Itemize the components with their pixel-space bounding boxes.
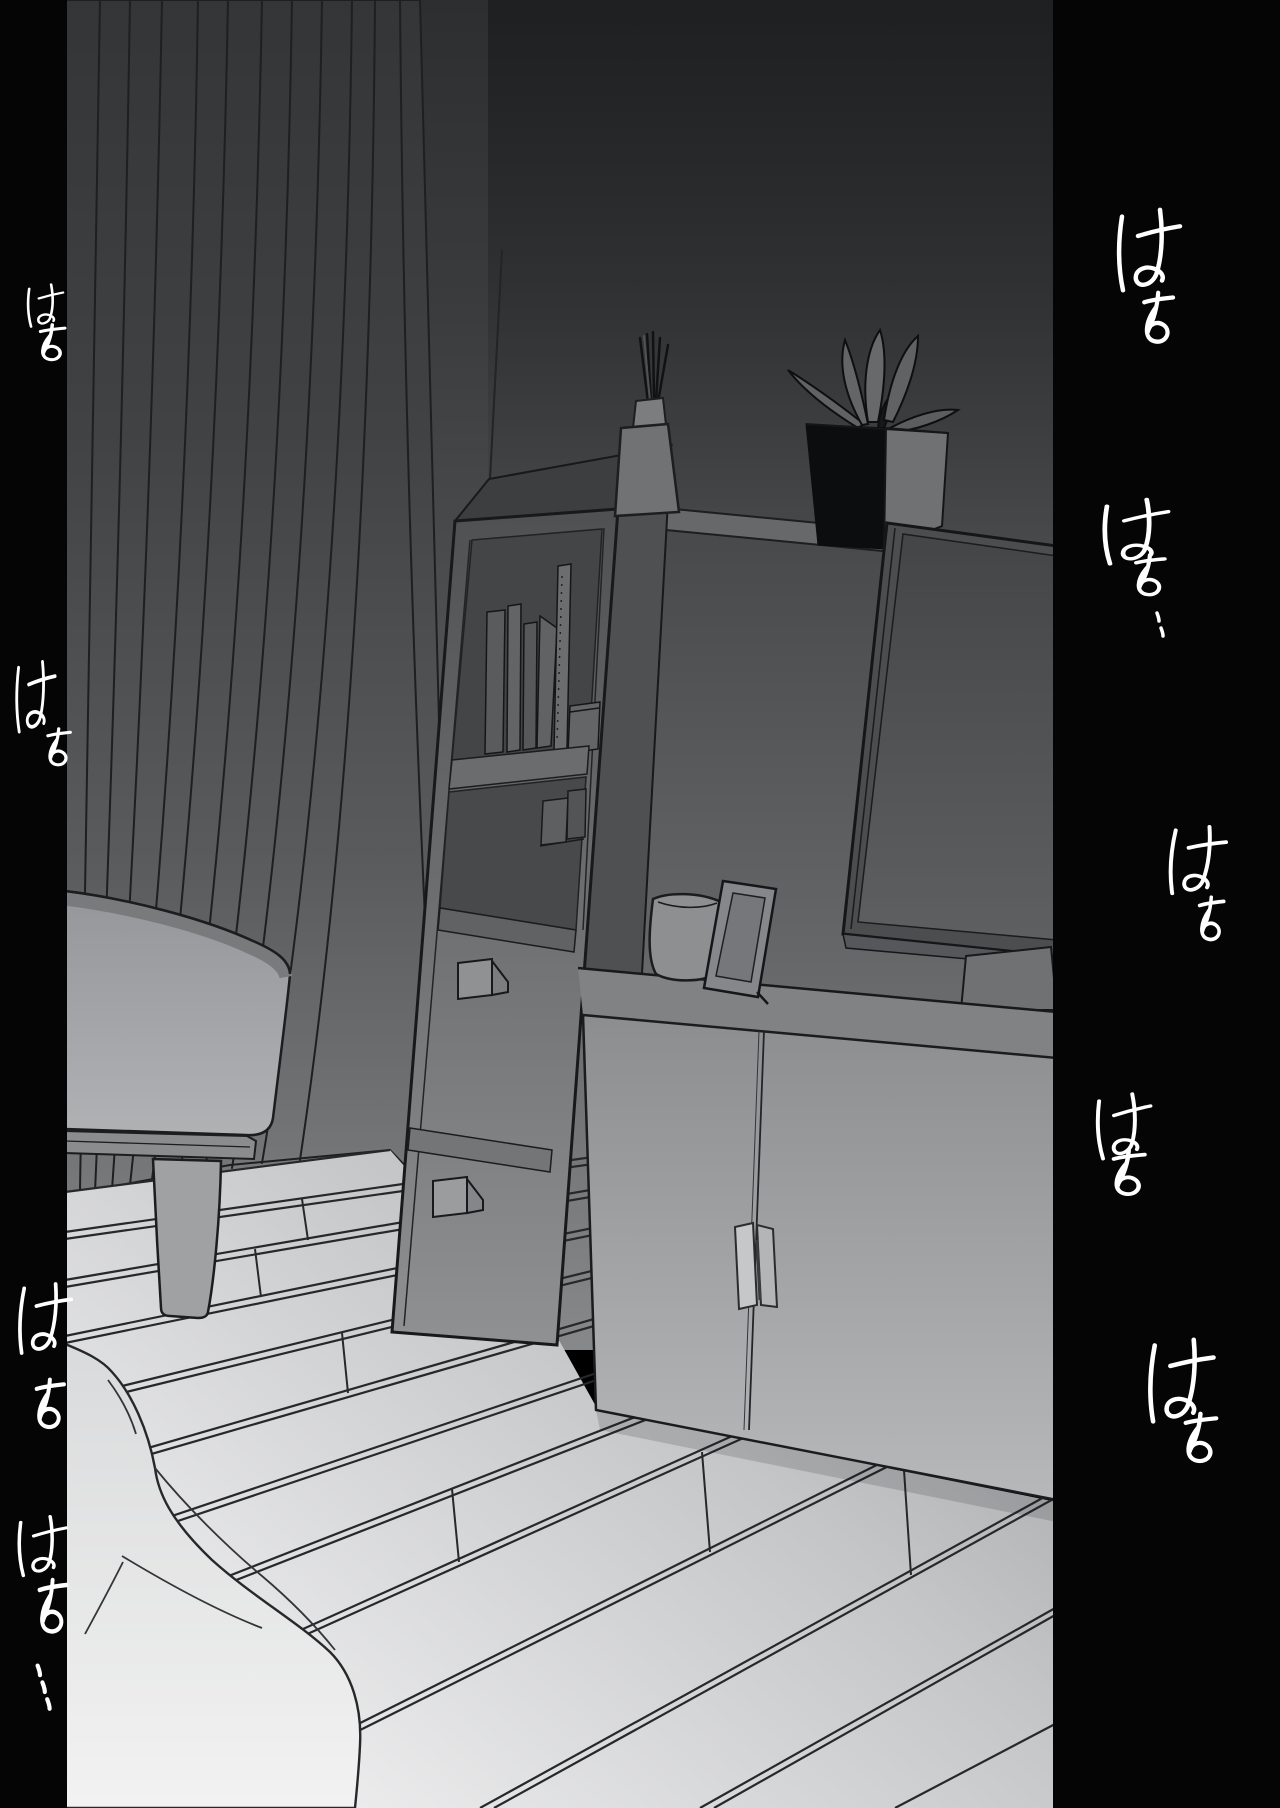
right-black-bar xyxy=(1053,0,1280,1808)
manga-panel-illustration xyxy=(0,0,1280,1808)
tv-stand xyxy=(961,947,1057,1010)
sideboard-cabinet xyxy=(578,968,1057,1522)
sofa-leg xyxy=(153,1159,221,1318)
room-scene xyxy=(65,0,1057,1808)
manga-page: はぁ はぁ‥ はぁ はぁ はぁ はぁ はぁ はぁ はぁ… xyxy=(0,0,1280,1808)
diffuser-bottle xyxy=(615,424,679,516)
plant-pot-shadow-side xyxy=(806,424,886,549)
sofa-base-rail xyxy=(65,1131,256,1159)
